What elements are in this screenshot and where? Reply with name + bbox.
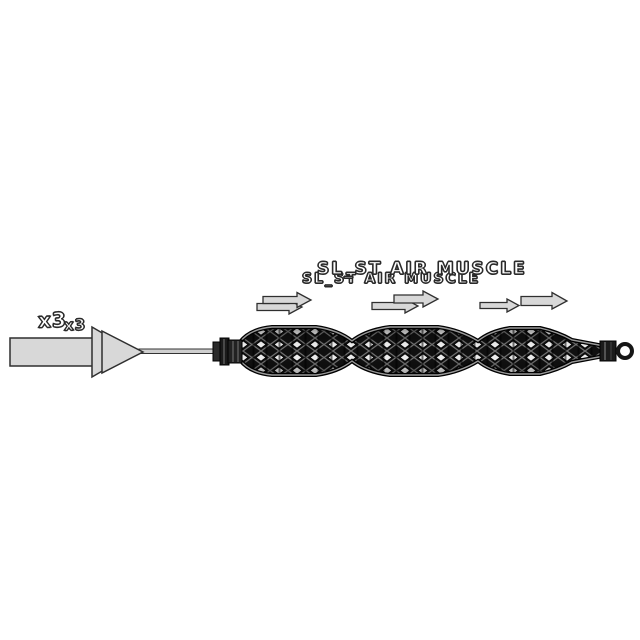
drive-rod [139, 349, 219, 354]
flow-arrows [257, 291, 567, 314]
muscle-title-front: SL_ST AIR MUSCLE [317, 259, 527, 279]
mounting-eyelet [618, 344, 632, 358]
multiplier-label-front: x3 [38, 308, 68, 333]
right-end-collar [600, 341, 616, 361]
air-muscle [210, 320, 632, 384]
flow-arrow-3-right [521, 293, 567, 310]
input-arrow-body [10, 338, 97, 366]
input-arrow [10, 327, 143, 377]
input-arrow-head-front [102, 331, 143, 373]
left-end-fitting [213, 338, 242, 365]
cad-canvas: SL_ST AIR MUSCLE SL_ST AIR MUSCLE x3 x3 [0, 0, 640, 640]
diagram-svg [0, 0, 640, 640]
flow-arrow-3-left [480, 299, 519, 312]
